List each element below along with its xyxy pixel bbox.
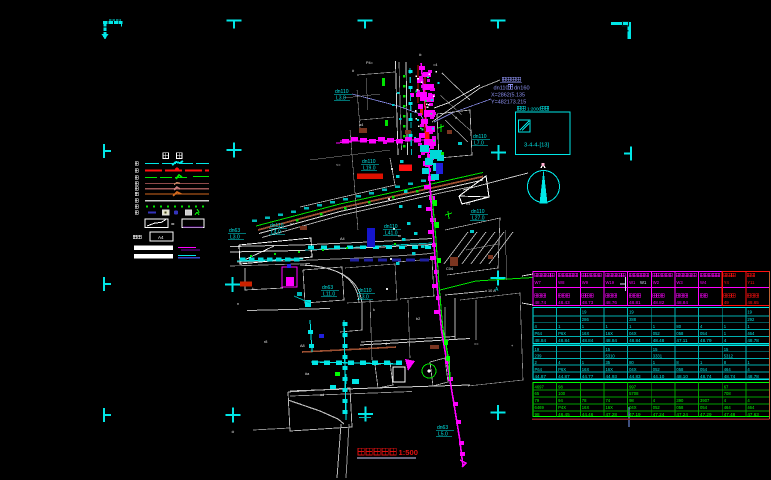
svg-text:98: 98 (629, 398, 634, 403)
svg-text:48.73: 48.73 (582, 300, 594, 305)
svg-text:054: 054 (700, 367, 708, 372)
svg-text:16X: 16X (582, 331, 590, 336)
svg-text:390: 390 (676, 398, 684, 403)
svg-text:48.78: 48.78 (747, 374, 759, 379)
svg-text:4: 4 (724, 338, 727, 343)
svg-text:W7: W7 (535, 280, 542, 285)
svg-text:<=: <= (336, 163, 341, 167)
svg-text:16X: 16X (582, 367, 590, 372)
svg-text:15: 15 (605, 347, 610, 352)
svg-text:80: 80 (629, 360, 634, 365)
svg-text:19: 19 (629, 310, 634, 315)
svg-text:47.24: 47.24 (676, 412, 688, 417)
svg-text:P6X: P6X (558, 367, 566, 372)
svg-text:n4: n4 (466, 202, 470, 206)
svg-text:47.63: 47.63 (747, 412, 759, 417)
svg-text:P4X: P4X (558, 405, 566, 410)
svg-text:r8: r8 (264, 340, 267, 344)
svg-text:C04: C04 (446, 267, 453, 271)
svg-text:464: 464 (747, 405, 755, 410)
svg-text:058: 058 (676, 367, 684, 372)
svg-text:1:500: 1:500 (399, 448, 418, 457)
svg-text:15: 15 (653, 347, 658, 352)
svg-text:P64: P64 (535, 331, 543, 336)
svg-text:44.10: 44.10 (653, 374, 665, 379)
svg-text:Y=482173.215: Y=482173.215 (491, 100, 526, 106)
svg-text:48.43: 48.43 (558, 300, 570, 305)
svg-text:292: 292 (747, 317, 755, 322)
svg-text:4697: 4697 (535, 384, 545, 389)
svg-text:47.48: 47.48 (724, 412, 736, 417)
svg-text:47.11: 47.11 (676, 338, 688, 343)
svg-text:#:: #: (419, 53, 422, 57)
svg-text:3907: 3907 (700, 398, 710, 403)
svg-text:P64: P64 (535, 367, 543, 372)
svg-text:78: 78 (582, 398, 587, 403)
svg-text:47.29: 47.29 (700, 412, 712, 417)
svg-text:44.87: 44.87 (558, 374, 570, 379)
svg-text:6469: 6469 (535, 405, 545, 410)
svg-text:48.82: 48.82 (653, 300, 665, 305)
svg-text:=: = (171, 222, 175, 228)
svg-text:997: 997 (629, 384, 637, 389)
svg-text:48.48: 48.48 (653, 338, 665, 343)
svg-text:W8: W8 (558, 280, 565, 285)
svg-text:48.84: 48.84 (676, 300, 688, 305)
svg-text:286: 286 (582, 317, 590, 322)
svg-text:19: 19 (582, 310, 587, 315)
svg-text:04X: 04X (629, 331, 637, 336)
svg-text:35: 35 (605, 360, 610, 365)
svg-text:44.77: 44.77 (582, 374, 594, 379)
svg-text:m: m (398, 234, 401, 238)
svg-text:48.78: 48.78 (747, 338, 759, 343)
svg-text:288: 288 (629, 317, 637, 322)
svg-text:708: 708 (724, 391, 732, 396)
svg-text:47.28: 47.28 (605, 412, 617, 417)
svg-text:47.24: 47.24 (653, 412, 665, 417)
svg-text:W9: W9 (582, 280, 589, 285)
svg-text:98: 98 (558, 384, 563, 389)
svg-text:464: 464 (724, 367, 732, 372)
svg-text:*:: *: (252, 287, 255, 291)
svg-text:5312: 5312 (724, 354, 734, 359)
svg-text:Y11: Y11 (747, 280, 755, 285)
svg-text:052: 052 (653, 405, 661, 410)
svg-text:dn160: dn160 (514, 86, 530, 92)
svg-text:10 A: 10 A (488, 289, 496, 293)
svg-text:04X: 04X (629, 367, 637, 372)
svg-text:k: k (373, 308, 375, 312)
svg-text:48.81: 48.81 (629, 300, 641, 305)
svg-text:79: 79 (535, 398, 540, 403)
svg-text:16X: 16X (582, 405, 590, 410)
svg-text:16X: 16X (605, 331, 613, 336)
svg-text:==: == (474, 342, 479, 346)
svg-text:X=2862(5.135: X=2862(5.135 (491, 93, 525, 99)
svg-text:3-4-4-[13]: 3-4-4-[13] (524, 143, 550, 149)
svg-text:48.76: 48.76 (605, 300, 617, 305)
svg-text:48.65: 48.65 (747, 300, 759, 305)
svg-text:48.74: 48.74 (700, 374, 712, 379)
svg-text:67: 67 (724, 384, 729, 389)
svg-text:80: 80 (676, 324, 681, 329)
svg-text:65: 65 (535, 391, 540, 396)
svg-text:W3: W3 (676, 280, 683, 285)
svg-text:94: 94 (558, 398, 563, 403)
svg-text:=4: =4 (433, 63, 437, 67)
svg-text:15: 15 (724, 347, 729, 352)
svg-text:A4: A4 (340, 237, 345, 241)
svg-text:98: 98 (535, 412, 541, 417)
svg-text:48.84: 48.84 (605, 338, 617, 343)
svg-text:48.84: 48.84 (629, 338, 641, 343)
svg-text:052: 052 (653, 331, 661, 336)
svg-text:P4=: P4= (366, 61, 374, 65)
svg-text:239: 239 (535, 354, 543, 359)
svg-text:x: x (310, 249, 312, 253)
svg-text:47.19: 47.19 (629, 412, 641, 417)
svg-text:dn110: dn110 (494, 86, 509, 92)
svg-text:48.10: 48.10 (676, 374, 688, 379)
svg-text:100: 100 (558, 391, 566, 396)
svg-text:48.84: 48.84 (582, 338, 594, 343)
svg-text:W19: W19 (605, 280, 614, 285)
svg-text:W2: W2 (653, 280, 660, 285)
svg-text:od: od (320, 393, 324, 397)
svg-text:464: 464 (724, 405, 732, 410)
svg-text:5310: 5310 (605, 354, 615, 359)
svg-text:74: 74 (605, 398, 610, 403)
svg-text:44.46: 44.46 (582, 412, 594, 417)
svg-text:b2: b2 (416, 317, 420, 321)
svg-text:46.45: 46.45 (558, 412, 570, 417)
svg-text:3331: 3331 (653, 354, 663, 359)
svg-text:16X: 16X (605, 367, 613, 372)
svg-text:A4: A4 (158, 235, 164, 240)
svg-text:W4: W4 (700, 280, 707, 285)
svg-text:W1: W1 (640, 280, 647, 285)
svg-text:W1: W1 (629, 280, 636, 285)
svg-text:5708: 5708 (629, 391, 639, 396)
svg-text:058: 058 (676, 405, 684, 410)
svg-text:49: 49 (724, 300, 730, 305)
svg-text:n: n (237, 302, 239, 306)
svg-text:A8: A8 (300, 344, 305, 348)
svg-text:464: 464 (747, 331, 755, 336)
svg-text:058: 058 (676, 331, 684, 336)
svg-text:16X: 16X (605, 405, 613, 410)
svg-text:19: 19 (747, 310, 752, 315)
svg-text:48.84: 48.84 (535, 338, 547, 343)
svg-text:052: 052 (653, 367, 661, 372)
svg-text:Y4: Y4 (724, 280, 730, 285)
svg-text:48.74: 48.74 (535, 300, 547, 305)
svg-text:4: 4 (385, 342, 387, 346)
svg-text:48.74: 48.74 (724, 374, 736, 379)
svg-text:48.79: 48.79 (700, 338, 712, 343)
svg-text:P6X: P6X (558, 331, 566, 336)
svg-text:44.93: 44.93 (605, 374, 617, 379)
svg-text:44.87: 44.87 (535, 374, 547, 379)
svg-text:054: 054 (700, 405, 708, 410)
svg-text:44.83: 44.83 (629, 374, 641, 379)
svg-text:04X: 04X (629, 405, 637, 410)
svg-text:1:2000: 1:2000 (527, 107, 541, 112)
svg-text:19: 19 (535, 347, 540, 352)
svg-text:054: 054 (700, 331, 708, 336)
svg-text:48.84: 48.84 (558, 338, 570, 343)
svg-text:a4: a4 (359, 123, 363, 127)
